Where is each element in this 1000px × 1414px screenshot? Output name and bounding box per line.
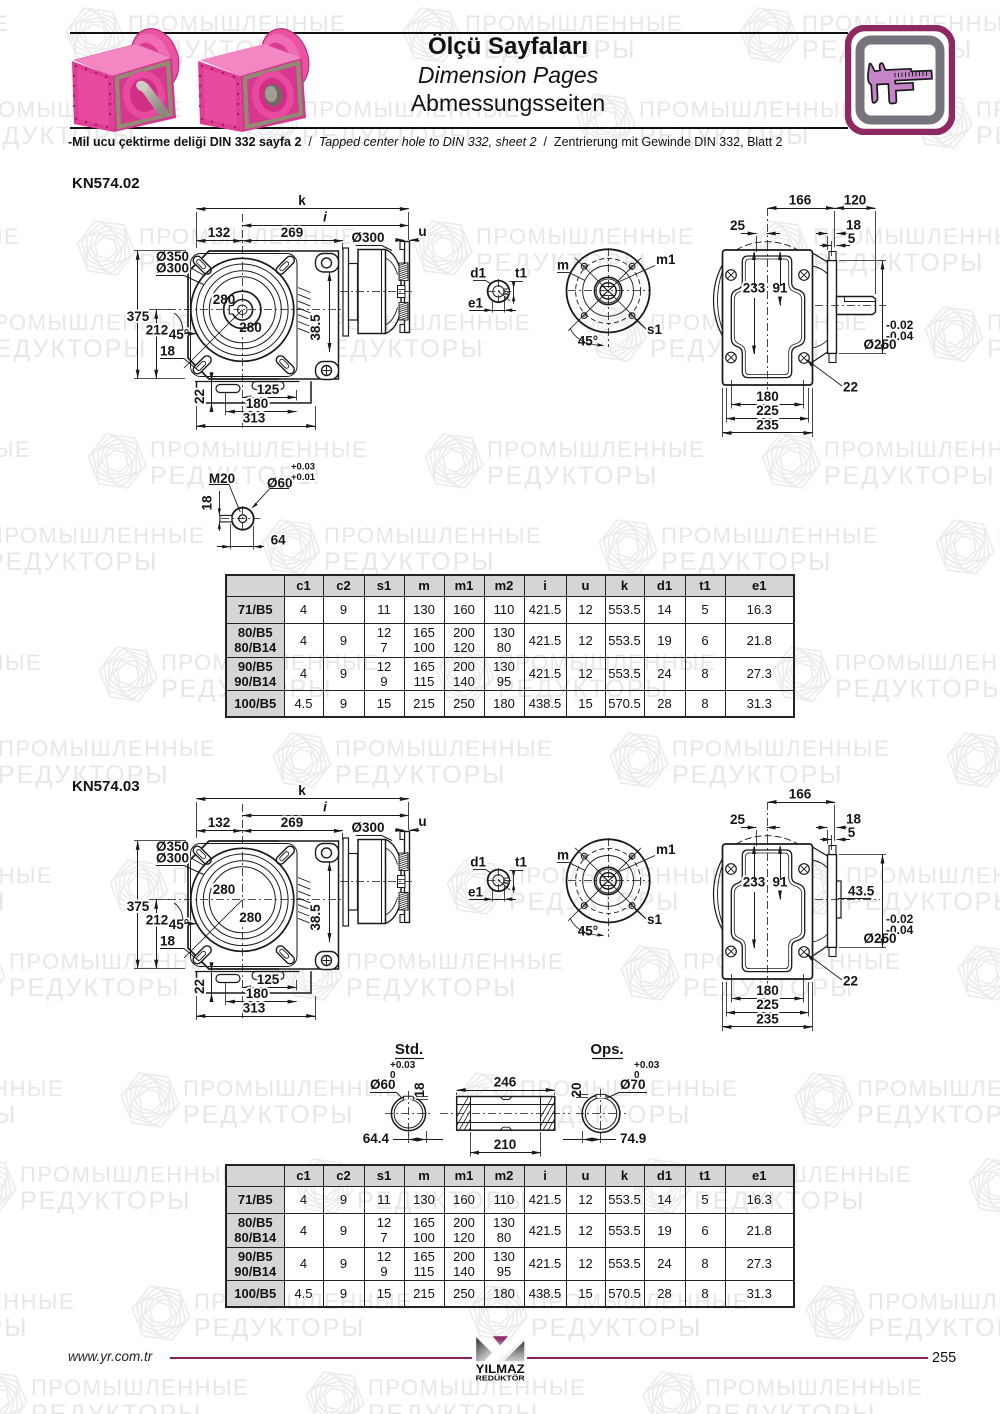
svg-text:269: 269 [281,225,304,240]
svg-text:+0.01: +0.01 [291,472,316,483]
svg-text:180: 180 [756,983,779,998]
svg-text:Ø300: Ø300 [156,261,189,276]
svg-text:246: 246 [494,1075,517,1090]
svg-text:64: 64 [271,533,287,548]
svg-text:166: 166 [789,193,812,208]
svg-text:45°: 45° [169,327,189,342]
svg-text:225: 225 [756,403,779,418]
svg-text:d1: d1 [470,266,486,281]
svg-text:M20: M20 [209,471,235,486]
svg-text:Ø250: Ø250 [863,337,896,352]
svg-text:Std.: Std. [395,1041,423,1058]
svg-text:e1: e1 [468,296,484,311]
svg-text:225: 225 [756,997,779,1012]
svg-text:18: 18 [412,1082,427,1098]
svg-text:0: 0 [390,1070,396,1081]
svg-text:166: 166 [789,787,812,802]
svg-text:20: 20 [569,1082,584,1097]
svg-text:0: 0 [634,1070,640,1081]
svg-text:120: 120 [844,193,867,208]
svg-text:m1: m1 [656,252,676,267]
svg-text:Ø70: Ø70 [620,1077,646,1092]
svg-text:280: 280 [239,320,262,335]
svg-text:YILMAZ: YILMAZ [476,1362,525,1376]
svg-text:18: 18 [160,344,176,359]
svg-text:Ø300: Ø300 [351,230,384,245]
svg-text:22: 22 [843,974,858,989]
svg-text:25: 25 [730,812,746,827]
svg-text:132: 132 [208,225,231,240]
svg-text:180: 180 [756,389,779,404]
svg-text:25: 25 [730,218,746,233]
svg-text:REDÜKTÖR: REDÜKTÖR [476,1374,525,1382]
svg-text:+0.03: +0.03 [291,462,315,473]
svg-text:m: m [557,258,569,273]
svg-text:5: 5 [848,825,856,840]
svg-text:313: 313 [243,411,266,426]
svg-text:38.5: 38.5 [308,314,323,341]
svg-text:22: 22 [192,389,207,404]
svg-text:235: 235 [756,1012,779,1027]
svg-text:t1: t1 [515,266,527,281]
svg-text:Ops.: Ops. [590,1041,623,1058]
svg-text:64.4: 64.4 [363,1131,390,1146]
svg-text:18: 18 [200,495,215,511]
svg-text:45°: 45° [578,334,598,349]
svg-text:u: u [418,224,426,239]
svg-text:i: i [323,210,327,225]
svg-text:125: 125 [257,382,280,397]
svg-text:180: 180 [246,396,269,411]
svg-text:212: 212 [146,323,169,338]
svg-text:22: 22 [843,380,858,395]
svg-text:235: 235 [756,418,779,433]
svg-text:5: 5 [848,231,856,246]
svg-text:210: 210 [494,1137,517,1152]
svg-text:k: k [298,193,306,208]
svg-text:Ø250: Ø250 [863,931,896,946]
svg-text:43.5: 43.5 [848,884,875,899]
svg-text:74.9: 74.9 [620,1131,646,1146]
svg-text:s1: s1 [647,322,663,337]
